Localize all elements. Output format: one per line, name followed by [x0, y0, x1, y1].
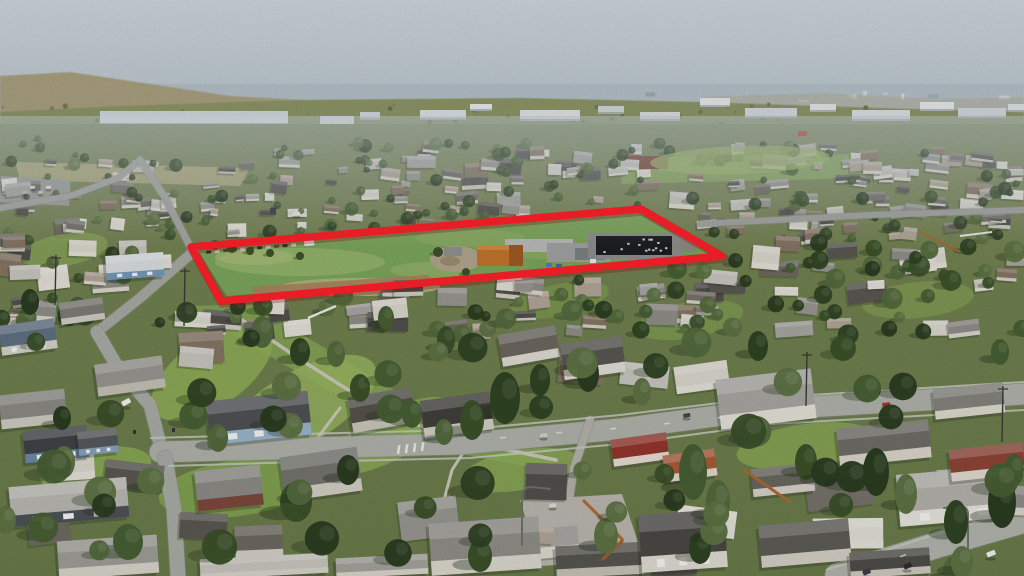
aerial-photo-canvas [0, 0, 1024, 576]
photo-grain-texture [0, 0, 1024, 576]
aerial-photo-of-suburb-with-red-parcel-outline [0, 0, 1024, 576]
